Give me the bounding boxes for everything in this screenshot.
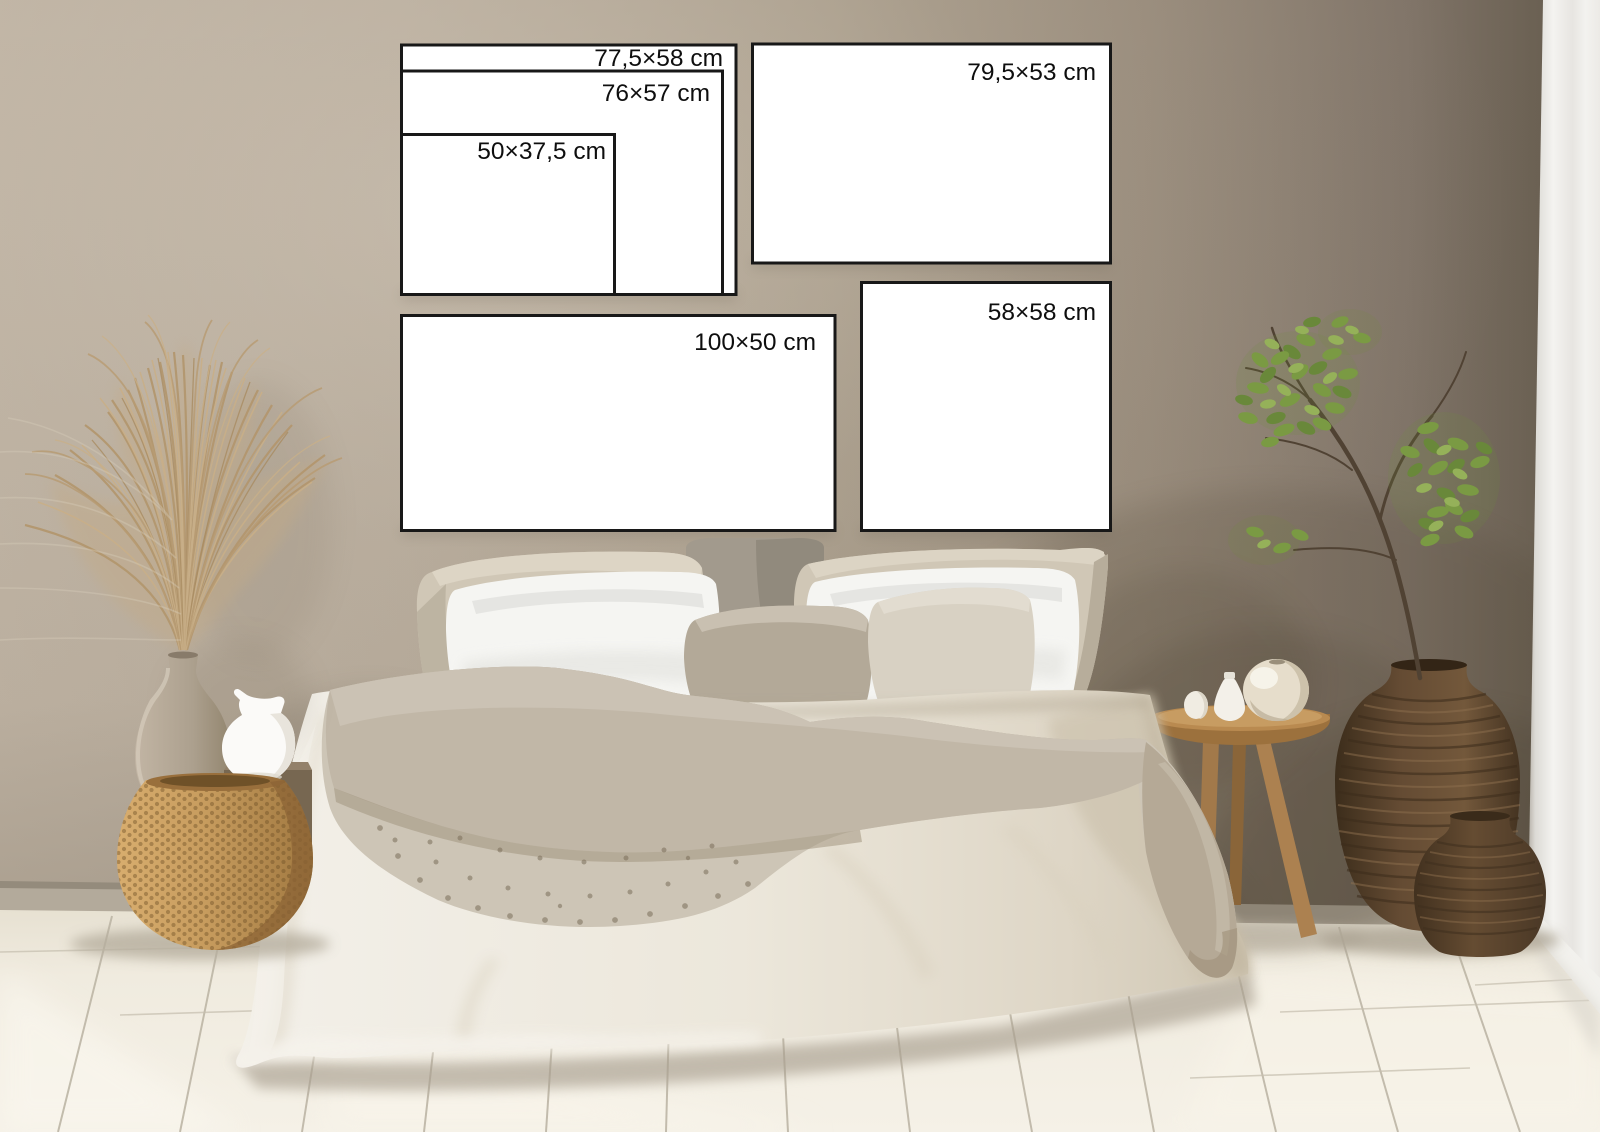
svg-text:77,5×58 cm: 77,5×58 cm [594, 45, 723, 72]
svg-text:100×50 cm: 100×50 cm [694, 329, 816, 356]
svg-text:76×57 cm: 76×57 cm [602, 80, 710, 107]
svg-text:58×58 cm: 58×58 cm [988, 299, 1096, 326]
svg-text:79,5×53 cm: 79,5×53 cm [967, 59, 1096, 86]
svg-text:50×37,5 cm: 50×37,5 cm [477, 138, 606, 165]
